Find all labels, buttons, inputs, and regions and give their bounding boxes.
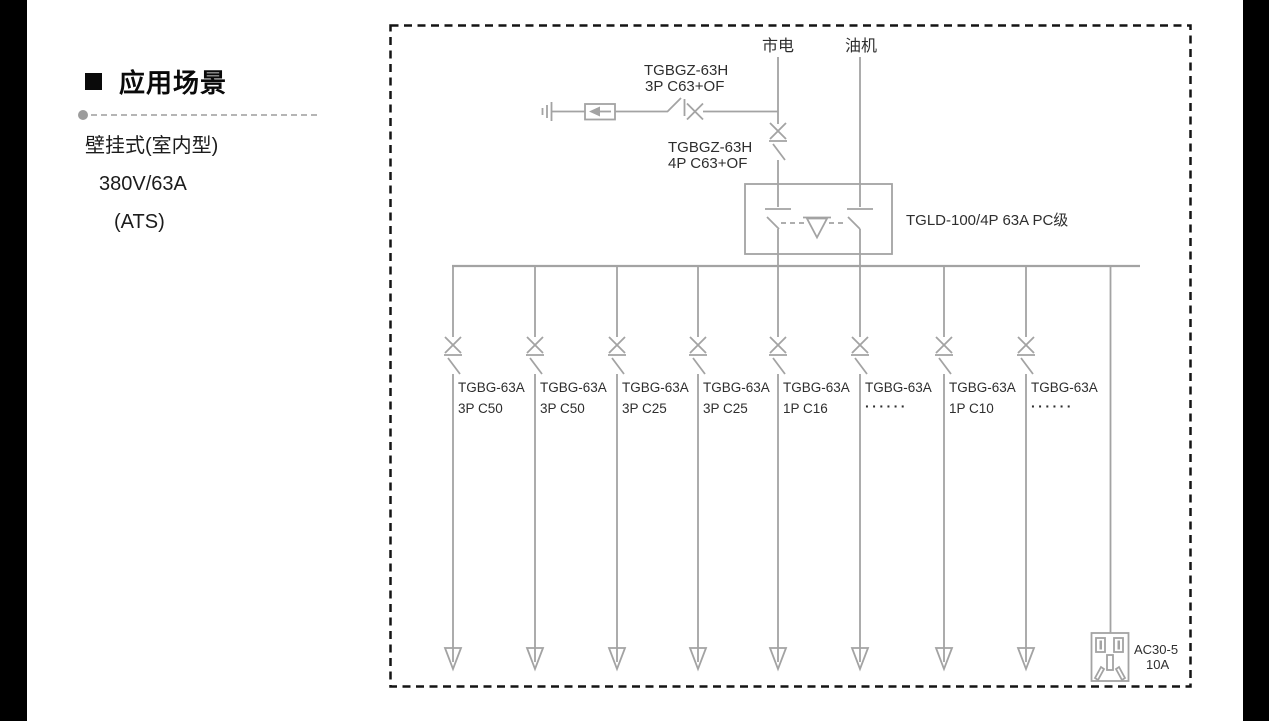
diagram-border — [391, 26, 1191, 687]
spec-list: 壁挂式(室内型) 380V/63A (ATS) — [85, 127, 335, 241]
application-scenario-panel: 应用场景 壁挂式(室内型) 380V/63A (ATS) — [85, 66, 335, 241]
section-heading: 应用场景 — [85, 66, 335, 96]
feeder-branch-6: TGBG-63A ······ — [851, 266, 932, 669]
socket-icon — [1092, 633, 1129, 681]
ats-mains-blade — [767, 217, 779, 229]
spec-rating: 380V/63A — [99, 165, 335, 203]
mains-label: 市电 — [762, 37, 794, 55]
dashed-separator — [81, 114, 317, 116]
branch-model: TGBG-63A — [949, 380, 1016, 395]
branch-spec: 3P C25 — [703, 401, 748, 416]
branch-model: TGBG-63A — [703, 380, 770, 395]
ats-box — [745, 184, 892, 266]
feeder-branch-2: TGBG-63A 3P C50 — [526, 266, 607, 669]
generator-label: 油机 — [845, 37, 877, 55]
feeder-branch-8: TGBG-63A ······ — [1017, 266, 1098, 669]
branch-model: TGBG-63A — [865, 380, 932, 395]
branch-model: TGBG-63A — [458, 380, 525, 395]
socket-model: AC30-5 — [1134, 642, 1178, 657]
spec-mounting: 壁挂式(室内型) — [85, 127, 335, 165]
branch-breaker-icon — [608, 337, 626, 374]
ats-label: TGLD-100/4P 63A PC级 — [906, 212, 1068, 229]
separator-dot-icon — [78, 110, 88, 120]
incoming-breaker-model: TGBGZ-63H — [668, 139, 752, 156]
branch-breaker-icon — [444, 337, 462, 374]
square-bullet-icon — [85, 73, 102, 90]
branch-breaker-icon — [1017, 337, 1035, 374]
branch-model: TGBG-63A — [1031, 380, 1098, 395]
branch-spec: ······ — [865, 398, 908, 414]
branch-spec: 3P C50 — [458, 401, 503, 416]
spd-breaker-spec: 3P C63+OF — [645, 78, 724, 95]
feeder-branch-1: TGBG-63A 3P C50 — [444, 266, 525, 669]
ats-actuator-icon — [803, 218, 831, 238]
branch-breaker-icon — [851, 337, 869, 374]
left-letterbox-bar — [0, 0, 27, 721]
spd-breaker-icon — [667, 98, 703, 120]
spd-icon — [585, 104, 615, 120]
branch-breaker-icon — [935, 337, 953, 374]
right-letterbox-bar — [1243, 0, 1269, 721]
branch-model: TGBG-63A — [622, 380, 689, 395]
feeder-branch-5: TGBG-63A 1P C16 — [769, 266, 850, 669]
branch-spec: ······ — [1031, 398, 1074, 414]
ats-generator-blade — [848, 217, 860, 229]
spd-breaker-model: TGBGZ-63H — [644, 62, 728, 79]
branch-breaker-icon — [689, 337, 707, 374]
branch-model: TGBG-63A — [540, 380, 607, 395]
socket-rating: 10A — [1146, 657, 1169, 672]
feeder-branch-7: TGBG-63A 1P C10 — [935, 266, 1016, 669]
branch-spec: 3P C50 — [540, 401, 585, 416]
section-title: 应用场景 — [119, 63, 227, 100]
spd-branch: TGBGZ-63H 3P C63+OF — [543, 62, 779, 121]
feeder-branch-3: TGBG-63A 3P C25 — [608, 266, 689, 669]
branch-spec: 1P C10 — [949, 401, 994, 416]
catalog-page: 应用场景 壁挂式(室内型) 380V/63A (ATS) 市电 油机 — [0, 0, 1269, 721]
branch-model: TGBG-63A — [783, 380, 850, 395]
branch-breaker-icon — [769, 337, 787, 374]
branch-spec: 3P C25 — [622, 401, 667, 416]
spec-type: (ATS) — [114, 203, 335, 241]
ground-icon — [543, 102, 552, 121]
branch-breaker-icon — [526, 337, 544, 374]
incoming-breaker-icon — [769, 123, 787, 160]
single-line-diagram: 市电 油机 TGBGZ-63H 4P C63+OF TGB — [389, 24, 1192, 688]
incoming-breaker-spec: 4P C63+OF — [668, 155, 747, 172]
socket-branch: AC30-5 10A — [1092, 266, 1179, 681]
branch-spec: 1P C16 — [783, 401, 828, 416]
feeder-branch-4: TGBG-63A 3P C25 — [689, 266, 770, 669]
